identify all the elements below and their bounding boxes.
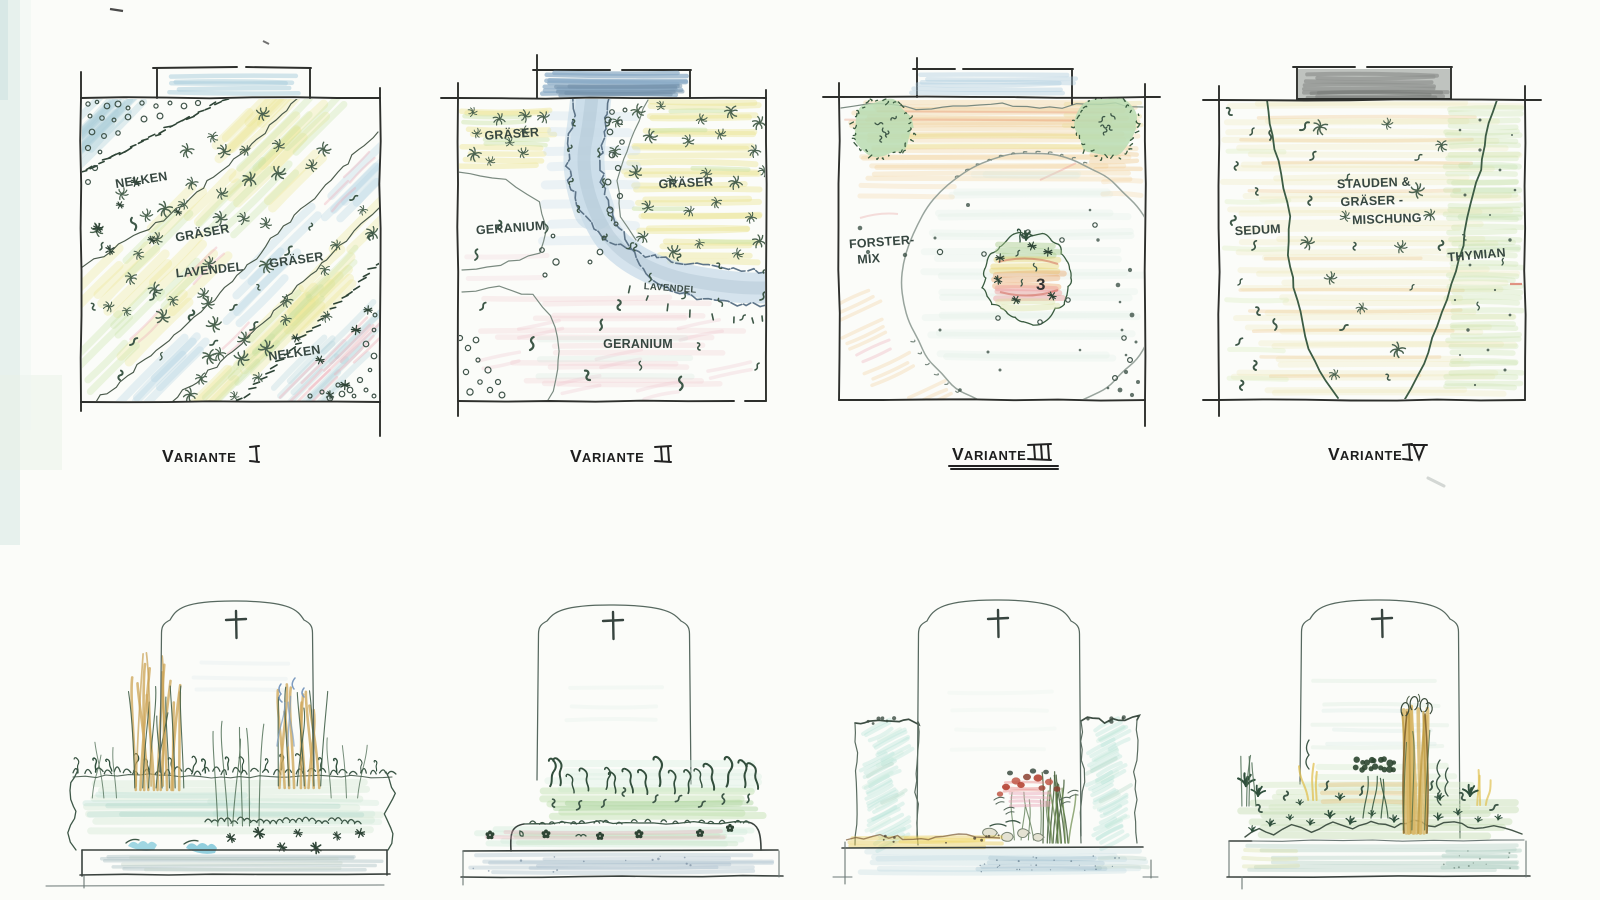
svg-text:MISCHUNG: MISCHUNG	[1352, 211, 1422, 227]
svg-text:GERANIUM: GERANIUM	[603, 337, 673, 351]
svg-text:MIX: MIX	[857, 251, 881, 267]
svg-text:SEDUM: SEDUM	[1234, 222, 1281, 238]
svg-text:GRÄSER: GRÄSER	[658, 174, 713, 192]
svg-text:GRÄSER -: GRÄSER -	[1340, 192, 1403, 209]
svg-text:STAUDEN &: STAUDEN &	[1337, 175, 1411, 192]
svg-text:3: 3	[1036, 275, 1045, 294]
